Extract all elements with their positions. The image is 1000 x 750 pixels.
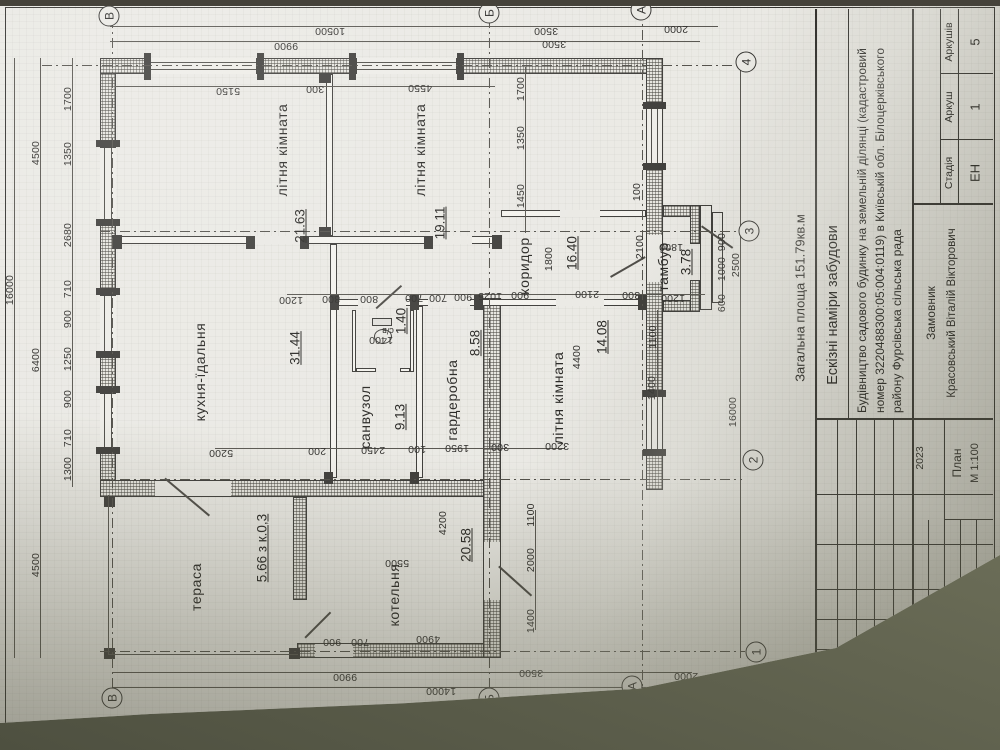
stage-value: ЕН: [968, 164, 983, 182]
dimension-line: [110, 26, 718, 27]
dimension-text: 710: [62, 280, 74, 298]
axis-marker-2: 2: [743, 450, 764, 471]
room-label: літня кімната: [412, 104, 428, 197]
terrace-edge: [108, 654, 298, 655]
pilaster: [324, 472, 333, 484]
sill-block: [144, 53, 151, 80]
room-label: кухня-їдальня: [192, 323, 208, 422]
sill-block: [96, 288, 120, 295]
room-area: 21.63: [293, 209, 308, 243]
dimension-text: 14000: [426, 685, 456, 697]
door-opening: [560, 210, 600, 217]
sill-block: [96, 386, 120, 393]
dimension-line: [112, 687, 690, 688]
room-area: 14.08: [595, 320, 610, 354]
wall-segment: [326, 74, 333, 236]
axis-marker-3: 3: [739, 221, 760, 242]
dimension-text: 2680: [62, 223, 74, 247]
dimension-text: 4500: [30, 141, 42, 165]
dimension-line: [215, 448, 565, 449]
room-area: 20.58: [459, 528, 474, 562]
room-label: літня кімната: [274, 104, 290, 197]
dimension-text: 5200: [209, 447, 233, 459]
dimension-text: 1300: [62, 457, 74, 481]
dimension-text: 700: [429, 292, 447, 304]
dimension-text: 900: [323, 636, 341, 648]
window-opening: [100, 295, 116, 352]
wall-segment: [330, 244, 337, 478]
room-label: гардеробна: [444, 359, 460, 440]
wall-segment: [293, 497, 307, 600]
dimension-text: 1200: [661, 292, 685, 304]
dimension-line: [14, 58, 15, 658]
sill-block: [643, 449, 666, 456]
dimension-text: 6400: [30, 348, 42, 372]
wall-segment: [352, 310, 356, 372]
axis-marker-В: В: [99, 6, 120, 27]
dimension-text: 1400: [646, 376, 658, 400]
room-label: санвузол: [357, 385, 373, 448]
dimension-text: 2100: [575, 288, 599, 300]
dimension-text: 4200: [437, 511, 449, 535]
sill-block: [257, 53, 264, 80]
dimension-text: 900: [62, 310, 74, 328]
floor-plan-sheet: Ескізні наміри забудови Будівництво садо…: [0, 0, 1000, 750]
sheet-label: Аркуш: [943, 91, 955, 122]
paper: Ескізні наміри забудови Будівництво садо…: [0, 0, 1000, 750]
sheets-value: 5: [968, 38, 983, 45]
dimension-text: 1800: [543, 247, 555, 271]
door-opening: [556, 299, 604, 306]
dimension-text: 2000: [674, 670, 698, 682]
project-description-line: району Фурсівська сільська рада: [890, 229, 904, 413]
dimension-text: 700: [405, 292, 423, 304]
pilaster: [410, 472, 419, 484]
dimension-text: 2500: [730, 253, 742, 277]
stage-label: Стадія: [943, 157, 955, 189]
dimension-text: 4500: [30, 553, 42, 577]
pilaster: [246, 236, 255, 249]
dimension-text: 600: [716, 294, 728, 312]
room-label: літня кімната: [550, 352, 566, 445]
dimension-text: 300: [491, 441, 509, 453]
room-label: тераса: [188, 563, 204, 611]
dimension-text: 9900: [333, 671, 357, 683]
dimension-text: 900: [62, 390, 74, 408]
wall-segment: [400, 368, 410, 372]
dimension-text: 9900: [274, 40, 298, 52]
dimension-text: 5150: [216, 85, 240, 97]
terrace-edge: [108, 495, 109, 655]
pilaster: [492, 235, 502, 249]
room-area: 8.58: [468, 330, 483, 356]
window-opening: [647, 108, 662, 164]
dimension-text: 16000: [727, 397, 739, 427]
sheets-label: Аркушів: [943, 22, 955, 61]
dimension-line: [72, 58, 73, 487]
dimension-text: 3500: [519, 667, 543, 679]
axis-line-4: [42, 65, 735, 66]
photo-frame: Ескізні наміри забудови Будівництво садо…: [0, 0, 1000, 750]
room-label: коридор: [516, 237, 532, 295]
date-value: 2023: [914, 446, 926, 469]
axis-marker-1: 1: [746, 642, 767, 663]
window-opening: [150, 58, 257, 74]
axis-line-2: [100, 479, 742, 480]
dimension-text: 1025: [478, 290, 502, 302]
terrace-post: [104, 496, 115, 507]
project-description-line: Будівництво садового будинку на земельні…: [855, 48, 869, 413]
sill-block: [96, 140, 120, 147]
wall-segment: [483, 298, 501, 658]
wall-segment: [410, 310, 414, 372]
dimension-line: [110, 41, 700, 42]
dimension-text: 4400: [571, 345, 583, 369]
dimension-text: 10500: [315, 25, 345, 37]
axis-line-b: [489, 18, 490, 708]
plan-label: План: [950, 449, 964, 478]
client-label: Замовник: [924, 286, 938, 340]
sill-block: [96, 219, 120, 226]
sill-block: [643, 163, 666, 170]
axis-marker-4: 4: [736, 52, 757, 73]
dimension-text: 3500: [534, 25, 558, 37]
sill-block: [96, 447, 120, 454]
room-area: 16.40: [565, 236, 580, 270]
axis-line-1: [100, 651, 745, 652]
pilaster: [319, 74, 331, 83]
project-description-line: номер 3220488300:05:004:0119) в Київські…: [873, 48, 887, 413]
dimension-text: 1400: [525, 609, 537, 633]
dimension-text: 1250: [62, 347, 74, 371]
axis-marker-Б: Б: [479, 688, 500, 709]
door-opening: [155, 481, 231, 496]
room-label: с/в: [382, 326, 394, 336]
dimension-text: 900: [454, 291, 472, 303]
window-opening: [356, 58, 457, 74]
sill-block: [643, 102, 666, 109]
dimension-text: 700: [351, 636, 369, 648]
axis-marker-В: В: [102, 688, 123, 709]
dimension-text: 800: [360, 293, 378, 305]
dimension-line: [740, 60, 741, 658]
dimension-text: 1100: [647, 325, 659, 348]
room-area: 19.11: [433, 207, 448, 240]
sill-block: [457, 53, 464, 80]
dimension-text: 100: [631, 183, 643, 201]
sheet-value: 1: [968, 103, 983, 110]
axis-line-v: [112, 22, 113, 708]
dimension-text: 2000: [664, 23, 688, 35]
dimension-text: 1000: [716, 257, 728, 281]
sill-block: [349, 53, 356, 80]
room-area: 31.44: [288, 331, 303, 365]
total-area-note: Загальна площа 151.79кв.м: [793, 214, 808, 382]
room-area: 5.66 з к.0,3: [255, 514, 270, 582]
room-label: тамбур: [655, 242, 671, 291]
dimension-text: 1450: [515, 184, 527, 208]
sketch-title: Ескізні наміри забудови: [825, 225, 841, 384]
photo-edge: [0, 0, 1000, 6]
client-name: Красовський Віталій Вікторович: [946, 228, 958, 397]
dimension-text: 800: [322, 293, 340, 305]
dimension-text: 900: [716, 233, 728, 251]
dimension-text: 710: [62, 429, 74, 447]
axis-line-a: [642, 14, 643, 700]
wall-segment: [690, 280, 700, 312]
room-area: 9.13: [393, 404, 408, 430]
window-opening: [100, 393, 116, 450]
pilaster: [112, 235, 122, 249]
wall-segment: [356, 368, 376, 372]
window-opening: [100, 147, 116, 220]
dimension-text: 1700: [62, 87, 74, 111]
dimension-text: 200: [308, 445, 326, 457]
dimension-text: 1950: [445, 442, 469, 454]
room-label: котельня: [386, 564, 402, 627]
dimension-text: 4900: [416, 633, 440, 645]
dimension-text: 3500: [542, 38, 566, 50]
scale-label: М 1:100: [969, 443, 981, 483]
room-area: 3.78: [679, 249, 694, 275]
dimension-text: 300: [306, 83, 324, 95]
dimension-text: 1350: [62, 142, 74, 166]
dimension-line: [112, 672, 692, 673]
dimension-text: 1700: [515, 77, 527, 101]
sill-block: [96, 351, 120, 358]
dimension-text: 100: [408, 443, 426, 455]
room-area: 1.40: [394, 308, 409, 334]
toilet-icon: [372, 318, 392, 326]
dimension-text: 2000: [525, 548, 537, 572]
wall-segment: [690, 205, 700, 244]
dimension-text: 4550: [408, 82, 432, 94]
dimension-text: 1200: [279, 294, 303, 306]
dimension-text: 1100: [525, 503, 537, 526]
window-opening: [647, 396, 662, 452]
dimension-text: 1350: [515, 126, 527, 150]
dimension-text: 16000: [4, 275, 16, 305]
axis-marker-А: А: [622, 676, 643, 697]
dimension-text: 2100: [634, 235, 646, 259]
door-opening: [484, 542, 500, 600]
dimension-text: 300: [622, 289, 640, 301]
